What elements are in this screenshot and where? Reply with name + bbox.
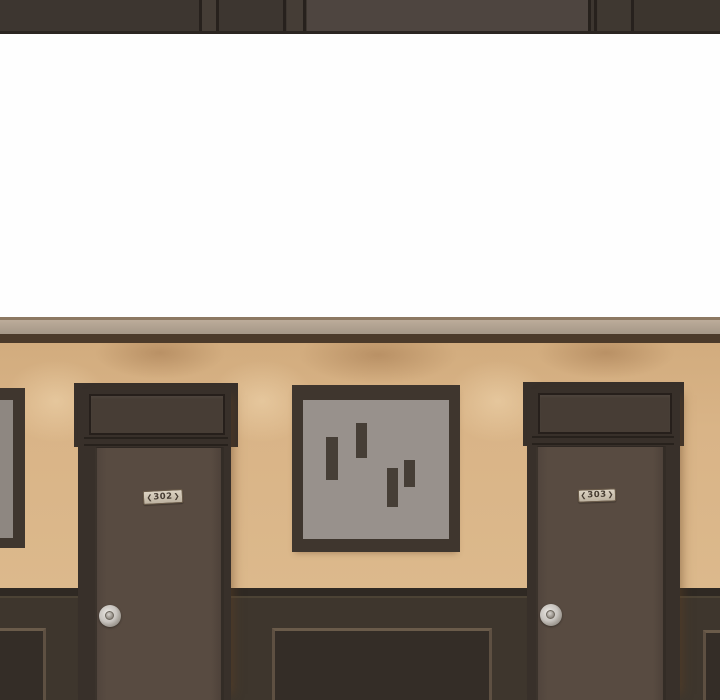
chevron-left-icon: ❮: [146, 494, 152, 501]
art-bar: [326, 437, 338, 480]
door-knob: [99, 605, 121, 627]
art-bar: [404, 460, 415, 487]
frame-rail-groove: [532, 443, 674, 445]
molding-dark-band: [0, 334, 720, 343]
door-number: 302: [153, 492, 173, 501]
frame-rail-groove: [532, 436, 674, 438]
crown-molding: [0, 317, 720, 343]
door-knob: [540, 604, 562, 626]
panel-seam-line: [631, 0, 634, 34]
panel-seam-line: [199, 0, 202, 34]
white-panel-gap: [0, 34, 720, 317]
door-number-plate: ❮ 303 ❯: [578, 488, 616, 502]
ceiling-panel: [598, 0, 631, 34]
chevron-right-icon: ❯: [607, 491, 613, 498]
ceiling-panel: [634, 0, 720, 34]
door-number: 303: [587, 491, 607, 500]
art-canvas: [303, 400, 449, 539]
wall-art-frame-left: [0, 388, 25, 548]
ceiling-panel-strip: [0, 0, 720, 34]
frame-rail-groove: [84, 444, 228, 446]
art-bar: [356, 423, 367, 458]
panel-seam-line: [216, 0, 219, 34]
molding-tan-band: [0, 320, 720, 334]
door-transom-panel: [89, 394, 225, 435]
ceiling-panel: [287, 0, 303, 34]
chevron-right-icon: ❯: [173, 493, 179, 500]
art-canvas: [0, 400, 13, 538]
wainscot-panel: [703, 630, 720, 700]
ceiling-panel: [307, 0, 588, 34]
wainscot-panel: [272, 628, 492, 700]
frame-rail-groove: [84, 437, 228, 439]
chevron-left-icon: ❮: [580, 492, 586, 499]
door-303: ❮ 303 ❯: [519, 382, 684, 700]
panel-seam-line: [588, 0, 591, 34]
hallway-scene: ❮ 302 ❯ ❮ 303 ❯: [0, 0, 720, 700]
door-slab: [536, 446, 666, 700]
door-302: ❮ 302 ❯: [74, 382, 238, 700]
panel-seam-line: [283, 0, 286, 34]
door-transom-panel: [538, 393, 672, 434]
panel-seam-line: [594, 0, 597, 34]
wall-art-frame: [292, 385, 460, 552]
door-number-plate: ❮ 302 ❯: [143, 489, 184, 505]
wainscot-panel: [0, 628, 46, 700]
panel-seam-line: [303, 0, 306, 34]
door-slab: [95, 447, 224, 700]
art-bar: [387, 468, 398, 507]
ceiling-panel: [202, 0, 216, 34]
